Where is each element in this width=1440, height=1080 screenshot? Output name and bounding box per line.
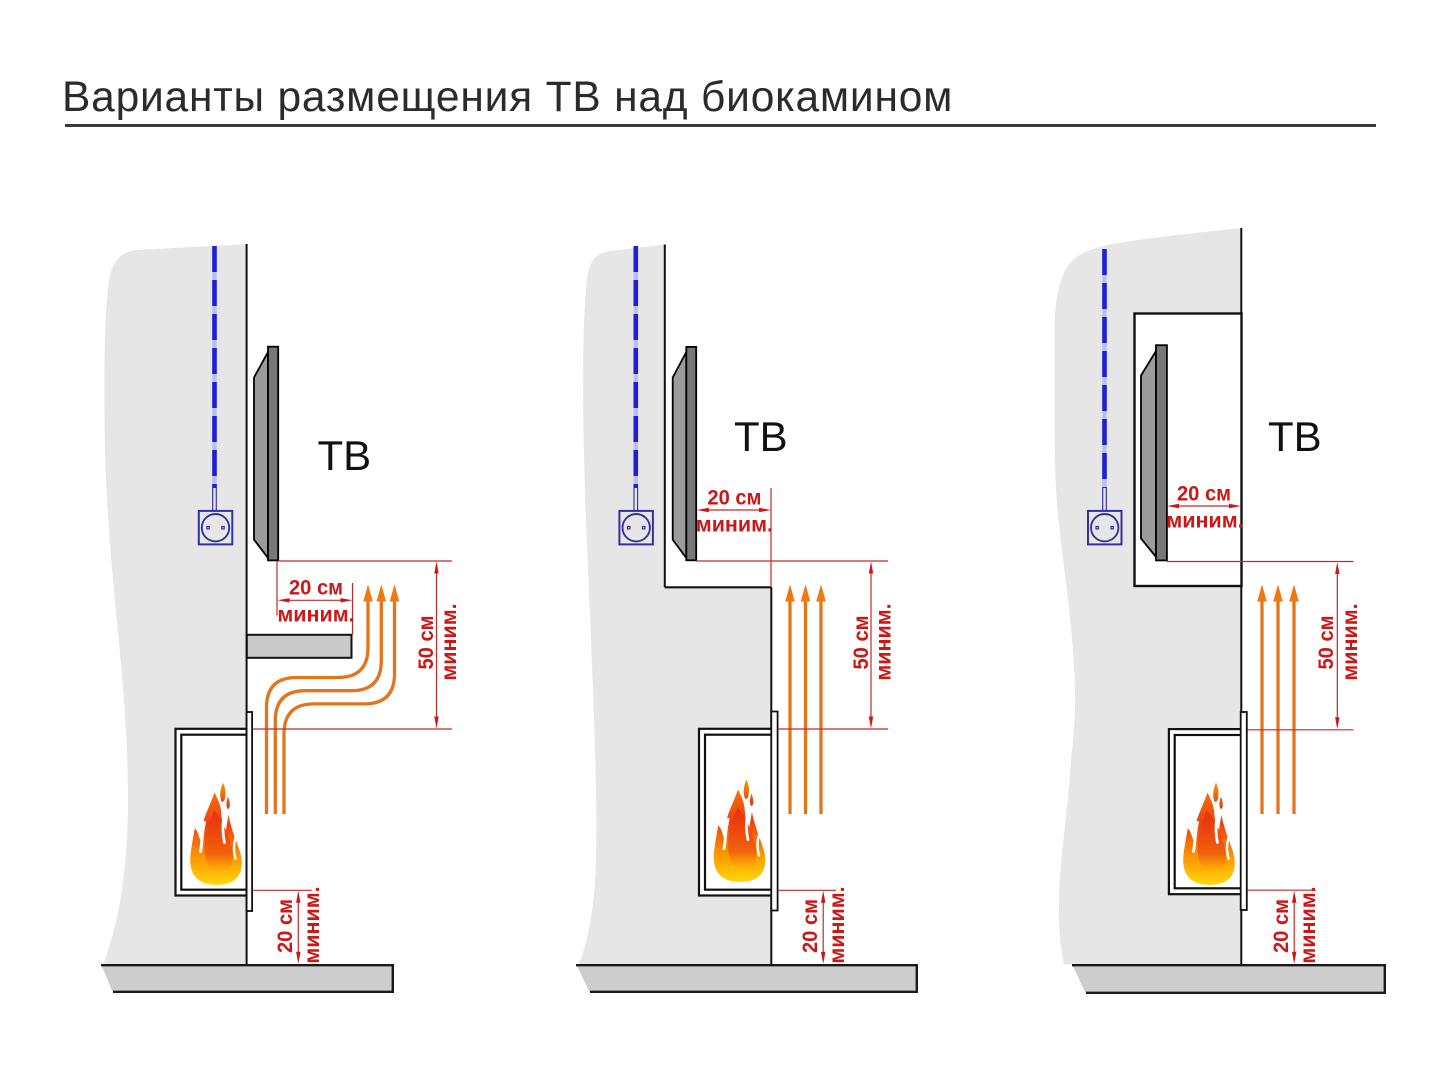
svg-text:ТВ: ТВ	[318, 432, 372, 479]
svg-text:50 см: 50 см	[414, 616, 438, 670]
svg-text:50 см: 50 см	[849, 616, 873, 670]
svg-text:20 см: 20 см	[707, 485, 761, 509]
svg-text:миним.: миним.	[277, 602, 354, 626]
svg-text:20 см: 20 см	[798, 899, 822, 953]
svg-text:20 см: 20 см	[1269, 899, 1293, 953]
svg-text:миним.: миним.	[300, 886, 324, 963]
svg-text:20 см: 20 см	[1177, 481, 1231, 505]
svg-text:миним.: миним.	[825, 886, 849, 963]
svg-text:20 см: 20 см	[289, 576, 343, 600]
svg-text:ТВ: ТВ	[1268, 413, 1322, 460]
svg-text:50 см: 50 см	[1314, 616, 1338, 670]
svg-text:20 см: 20 см	[273, 899, 297, 953]
svg-text:миним.: миним.	[696, 512, 773, 536]
svg-text:ТВ: ТВ	[734, 413, 788, 460]
svg-text:миним.: миним.	[1166, 508, 1243, 532]
svg-text:миним.: миним.	[437, 603, 461, 680]
svg-text:миним.: миним.	[1296, 886, 1320, 963]
svg-text:Варианты размещения ТВ над био: Варианты размещения ТВ над биокамином	[62, 74, 953, 121]
svg-text:миним.: миним.	[1338, 603, 1362, 680]
svg-text:миним.: миним.	[872, 603, 896, 680]
